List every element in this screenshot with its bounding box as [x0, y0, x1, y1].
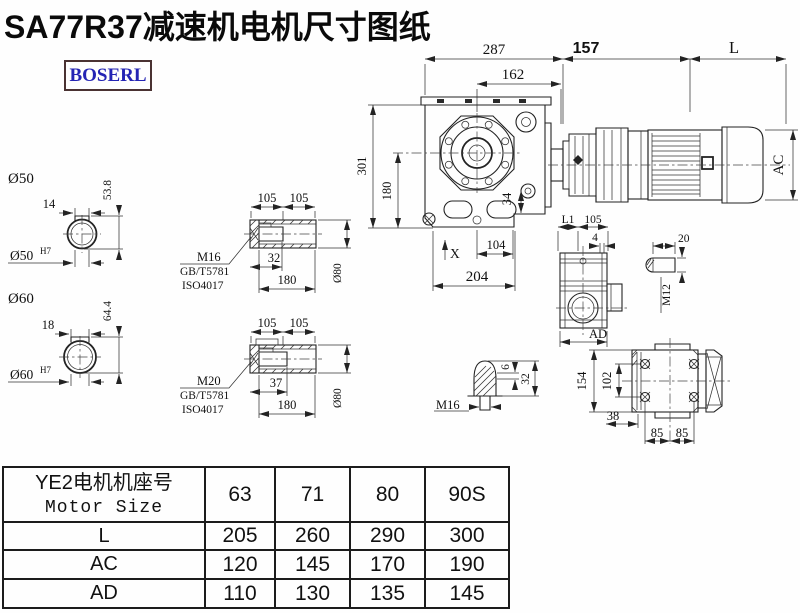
label-X: X [450, 246, 460, 261]
dim-53-8: 53.8 [102, 180, 114, 200]
dim-L: L [729, 38, 739, 57]
label-bore60: Ø60 [10, 367, 33, 382]
dim-301: 301 [355, 157, 369, 176]
dim-AC: AC [771, 155, 787, 176]
cell-AC-80: 170 [350, 550, 425, 579]
dim-6: 6 [500, 364, 512, 370]
dim-104: 104 [487, 238, 507, 252]
cell-AC-63: 120 [205, 550, 275, 579]
dim-105-d: 105 [290, 316, 309, 330]
cell-L-63: 205 [205, 522, 275, 550]
label-gb5781-bottom: GB/T5781 [180, 390, 229, 402]
cell-AC-90S: 190 [425, 550, 509, 579]
label-bore50-tol: H7 [40, 246, 51, 256]
gearbox-side-view: L1 105 4 AD [556, 214, 628, 347]
label-m12: M12 [661, 284, 673, 306]
dim-20: 20 [678, 233, 690, 245]
label-bore60-tol: H7 [40, 365, 51, 375]
breather-diamond-icon [573, 155, 583, 165]
dim-AD: AD [589, 327, 607, 341]
dim-keyw-14: 14 [43, 197, 56, 211]
dim-37: 37 [270, 376, 283, 390]
row-label-AC: AC [3, 550, 205, 579]
cell-L-71: 260 [275, 522, 350, 550]
cell-AD-90S: 145 [425, 579, 509, 608]
dim-34: 34 [500, 192, 514, 205]
row-label-L: L [3, 522, 205, 550]
dim-4: 4 [592, 232, 598, 244]
label-iso4017-top: ISO4017 [182, 280, 224, 292]
label-m20: M20 [197, 374, 221, 388]
dim-154: 154 [575, 371, 589, 391]
dim-102: 102 [600, 372, 614, 391]
dim-dia80-bottom: Ø80 [332, 388, 344, 408]
cell-AD-71: 130 [275, 579, 350, 608]
dim-38: 38 [607, 409, 620, 423]
header-col-90S: 90S [425, 467, 509, 522]
dim-105-b: 105 [290, 191, 309, 205]
dim-dia80-top: Ø80 [332, 263, 344, 283]
dim-105-c: 105 [258, 316, 277, 330]
header-motor-size-cn: YE2电机机座号 [4, 470, 204, 496]
dim-180-bottom: 180 [278, 398, 297, 412]
header-motor-size: YE2电机机座号 Motor Size [3, 467, 205, 522]
bushing-top-view: 105 105 32 180 Ø80 M16 GB/T5781 ISO4017 [180, 191, 351, 293]
cell-AD-80: 135 [350, 579, 425, 608]
table-header-row: YE2电机机座号 Motor Size 63 71 80 90S [3, 467, 509, 522]
key-detail-view: 20 M12 [646, 233, 690, 313]
shaft-section-50: Ø50 14 53.8 Ø50 H7 [8, 171, 123, 267]
table-row-AD: AD 110 130 135 145 [3, 579, 509, 608]
dim-85-a: 85 [651, 426, 664, 440]
dim-180: 180 [380, 182, 394, 201]
dim-204: 204 [466, 269, 489, 285]
label-m16: M16 [197, 250, 221, 264]
cell-L-80: 290 [350, 522, 425, 550]
cell-AC-71: 145 [275, 550, 350, 579]
header-col-80: 80 [350, 467, 425, 522]
motor-nameplate [702, 157, 713, 169]
table-row-AC: AC 120 145 170 190 [3, 550, 509, 579]
motor-dimension-table: YE2电机机座号 Motor Size 63 71 80 90S L 205 2… [2, 466, 510, 609]
plug-detail-view: M16 6 32 [434, 361, 539, 412]
dim-keyw-18: 18 [42, 318, 55, 332]
header-col-63: 63 [205, 467, 275, 522]
dim-64-4: 64.4 [102, 301, 114, 321]
dim-180-top: 180 [278, 273, 297, 287]
dim-157: 157 [573, 40, 600, 57]
technical-drawing: 287 162 157 L AC 301 180 34 X 104 204 Ø5… [0, 0, 800, 462]
dim-32-plug: 32 [520, 373, 532, 385]
dim-32: 32 [268, 251, 281, 265]
header-motor-size-en: Motor Size [4, 496, 204, 520]
table-row-L: L 205 260 290 300 [3, 522, 509, 550]
dim-162: 162 [502, 67, 525, 83]
cell-L-90S: 300 [425, 522, 509, 550]
dim-85-b: 85 [676, 426, 689, 440]
bushing-bottom-view: 105 105 37 180 Ø80 M20 GB/T5781 ISO4017 [180, 316, 351, 418]
label-bore50: Ø50 [10, 248, 33, 263]
label-dia50: Ø50 [8, 171, 34, 187]
label-dia60: Ø60 [8, 291, 34, 307]
page: { "title": "SA77R37减速机电机尺寸图纸", "logo": "… [0, 0, 800, 613]
row-label-AD: AD [3, 579, 205, 608]
rear-view: 154 102 38 85 85 [575, 338, 730, 444]
label-iso4017-bottom: ISO4017 [182, 404, 224, 416]
label-m16-plug: M16 [436, 398, 460, 412]
dim-L1: L1 [562, 214, 575, 226]
dim-287: 287 [483, 42, 506, 58]
cell-AD-63: 110 [205, 579, 275, 608]
label-gb5781-top: GB/T5781 [180, 266, 229, 278]
shaft-section-60: Ø60 18 64.4 Ø60 H7 [8, 291, 123, 386]
dim-105-a: 105 [258, 191, 277, 205]
header-col-71: 71 [275, 467, 350, 522]
dim-105-side: 105 [584, 214, 602, 226]
